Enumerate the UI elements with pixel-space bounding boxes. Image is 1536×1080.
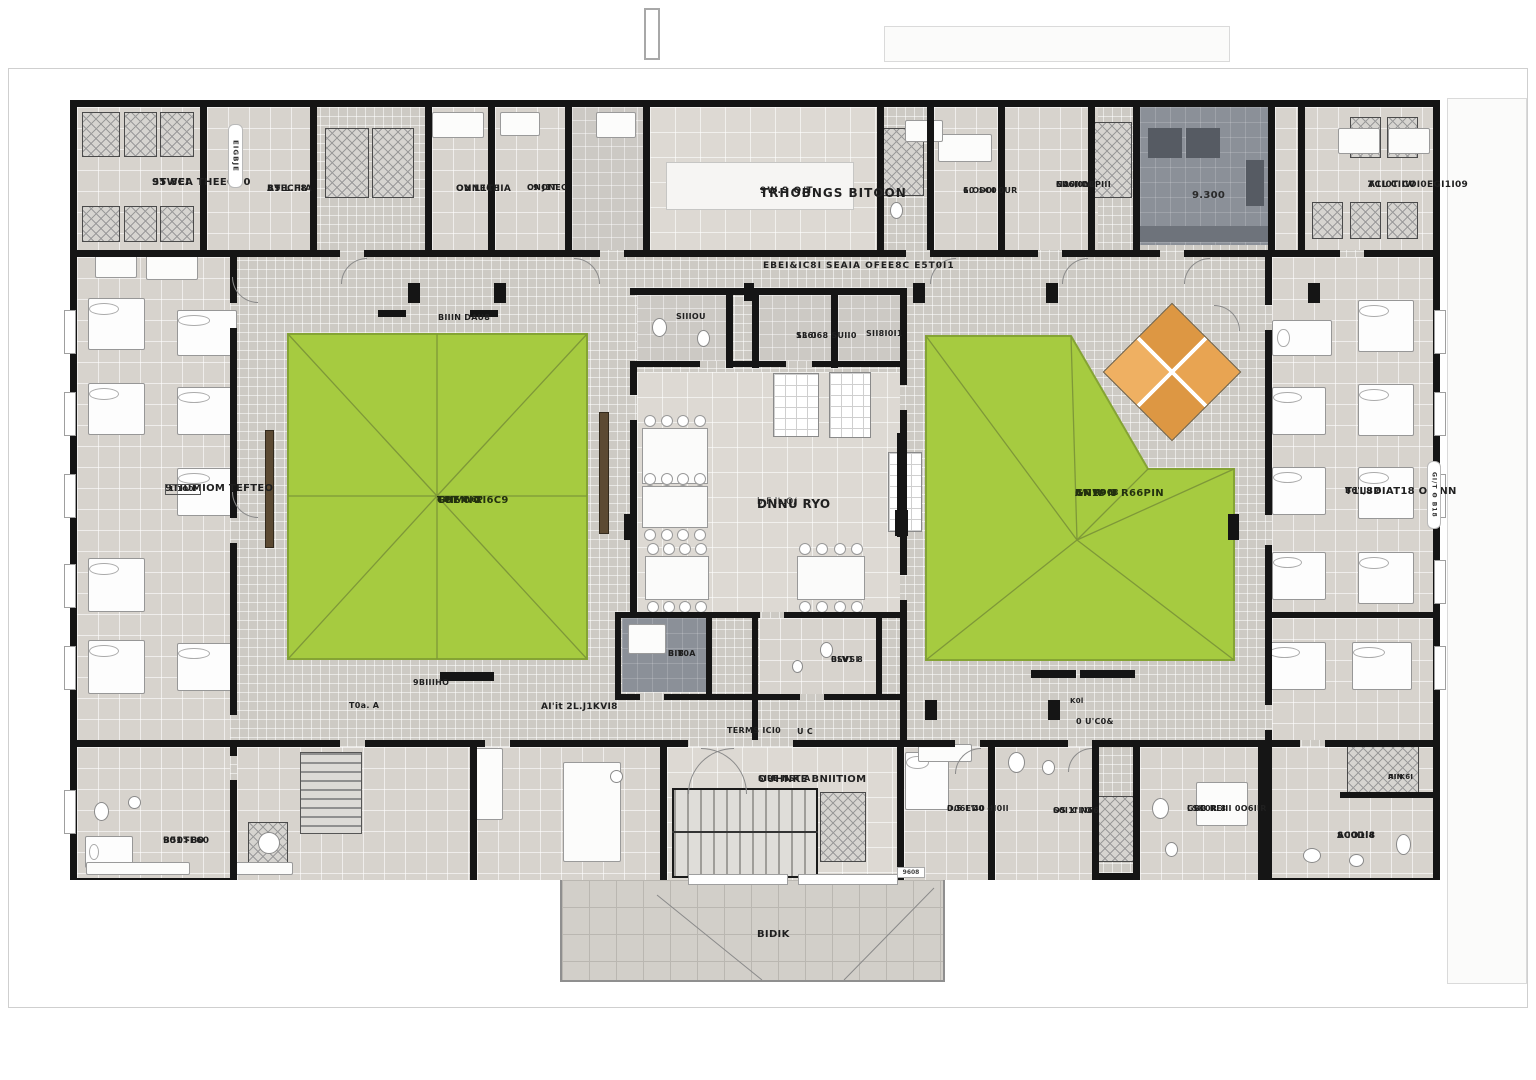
room-floor bbox=[838, 295, 900, 361]
chair bbox=[661, 529, 673, 541]
bed bbox=[1352, 642, 1412, 690]
pillow bbox=[178, 315, 210, 326]
bed bbox=[1272, 320, 1332, 356]
wall bbox=[230, 740, 340, 747]
chair bbox=[644, 415, 656, 427]
bed bbox=[177, 643, 237, 691]
bath-fixture bbox=[1349, 854, 1364, 867]
deck-lines bbox=[562, 880, 947, 984]
wall bbox=[895, 510, 908, 536]
wall bbox=[925, 700, 937, 720]
wall bbox=[624, 250, 906, 257]
wall bbox=[615, 612, 760, 618]
wall bbox=[706, 612, 712, 700]
wall bbox=[930, 250, 1038, 257]
wall bbox=[1265, 545, 1272, 705]
furniture bbox=[1388, 128, 1430, 154]
chair bbox=[694, 473, 706, 485]
wall bbox=[230, 543, 237, 715]
furniture bbox=[1338, 128, 1380, 154]
pillow bbox=[1359, 305, 1389, 317]
pillow bbox=[89, 388, 119, 400]
counter bbox=[1148, 128, 1182, 158]
bench bbox=[1228, 514, 1239, 540]
sauna-benches bbox=[300, 752, 362, 834]
bed bbox=[1272, 552, 1326, 600]
pillow bbox=[1277, 329, 1290, 348]
wall bbox=[365, 740, 485, 747]
window bbox=[64, 646, 76, 690]
wall bbox=[900, 600, 907, 740]
chair bbox=[679, 543, 691, 555]
counter bbox=[1140, 226, 1268, 242]
counter bbox=[1186, 128, 1220, 158]
chair bbox=[695, 543, 707, 555]
note-side-right: GI/T Θ B18 bbox=[1427, 461, 1441, 529]
furniture bbox=[500, 112, 540, 136]
window bbox=[64, 790, 76, 834]
wall bbox=[615, 612, 621, 700]
shaft bbox=[372, 128, 414, 198]
room-floor bbox=[637, 295, 726, 361]
chair bbox=[834, 543, 846, 555]
wall bbox=[1184, 250, 1340, 257]
bed bbox=[1272, 467, 1326, 515]
pillow bbox=[1359, 389, 1389, 401]
wall bbox=[630, 361, 700, 367]
furniture bbox=[938, 134, 992, 162]
wall bbox=[1062, 250, 1160, 257]
wall bbox=[70, 250, 340, 257]
dining-table bbox=[642, 486, 708, 528]
window bbox=[1434, 646, 1446, 690]
bath-fixture bbox=[128, 796, 141, 809]
chair bbox=[851, 543, 863, 555]
furniture bbox=[905, 120, 943, 142]
window bbox=[688, 874, 788, 885]
wall bbox=[1308, 283, 1320, 303]
wall bbox=[470, 740, 477, 880]
chair bbox=[644, 529, 656, 541]
wall bbox=[565, 107, 572, 250]
wall bbox=[310, 107, 317, 250]
bench bbox=[1031, 670, 1076, 678]
wall bbox=[630, 288, 907, 295]
floor-plan-canvas: STWEA THEEOI 095 8CI EIGBJE BTECIIIAA9 L… bbox=[0, 0, 1536, 1080]
wall bbox=[624, 514, 637, 540]
dining-table bbox=[645, 556, 709, 600]
window bbox=[64, 310, 76, 354]
wall bbox=[913, 283, 925, 303]
dining-table bbox=[797, 556, 865, 600]
shaft bbox=[1096, 796, 1134, 862]
shaft bbox=[124, 206, 157, 242]
wall bbox=[998, 107, 1005, 250]
bath-fixture bbox=[1303, 848, 1321, 863]
wall bbox=[927, 107, 934, 250]
pillow bbox=[178, 392, 210, 403]
pillow bbox=[1269, 647, 1300, 658]
pillow bbox=[1273, 472, 1302, 483]
furniture bbox=[235, 862, 293, 875]
wall bbox=[230, 780, 237, 880]
shaft bbox=[160, 112, 194, 157]
bath-fixture bbox=[94, 802, 109, 821]
window bbox=[1434, 310, 1446, 354]
bed bbox=[88, 383, 145, 435]
wall bbox=[1265, 612, 1440, 618]
pillow bbox=[178, 648, 210, 659]
bed bbox=[177, 310, 237, 356]
bed bbox=[1358, 300, 1414, 352]
pillow bbox=[89, 645, 119, 657]
counter bbox=[1246, 160, 1264, 206]
bed bbox=[177, 387, 237, 435]
wall bbox=[364, 250, 600, 257]
chair bbox=[647, 543, 659, 555]
wood-bench bbox=[599, 412, 609, 534]
deck bbox=[560, 878, 945, 982]
pillow bbox=[1273, 392, 1302, 403]
furniture bbox=[473, 748, 503, 820]
wall bbox=[1268, 107, 1275, 250]
window-seat bbox=[829, 372, 871, 438]
window bbox=[798, 874, 898, 885]
bed bbox=[88, 558, 145, 612]
wall bbox=[876, 612, 882, 700]
shaft bbox=[124, 112, 157, 157]
wall bbox=[77, 740, 230, 747]
chair bbox=[661, 473, 673, 485]
furniture bbox=[596, 112, 636, 138]
wall bbox=[1325, 740, 1440, 747]
shaft bbox=[1312, 202, 1343, 239]
pillow bbox=[1353, 647, 1385, 658]
shaft bbox=[1387, 202, 1418, 239]
bath-fixture bbox=[1152, 798, 1169, 819]
wall bbox=[1265, 257, 1272, 305]
pillow bbox=[89, 303, 119, 315]
window-seat bbox=[773, 373, 819, 437]
bath-fixture bbox=[610, 770, 623, 783]
bed bbox=[1268, 642, 1326, 690]
wall bbox=[1364, 250, 1440, 257]
window bbox=[64, 564, 76, 608]
bath-fixture bbox=[1396, 834, 1411, 855]
wall bbox=[726, 288, 733, 368]
bath-fixture bbox=[1008, 752, 1025, 773]
wall bbox=[494, 283, 506, 303]
wall bbox=[488, 107, 495, 250]
wall bbox=[1048, 700, 1060, 720]
wall bbox=[630, 365, 637, 395]
wall bbox=[1265, 330, 1272, 515]
chair bbox=[799, 543, 811, 555]
wall bbox=[1133, 107, 1140, 250]
room-floor bbox=[934, 107, 1098, 250]
window bbox=[1434, 392, 1446, 436]
chair bbox=[694, 529, 706, 541]
bed bbox=[88, 640, 145, 694]
bench bbox=[1080, 670, 1135, 678]
stair-rail bbox=[672, 831, 818, 833]
wall bbox=[1133, 747, 1140, 880]
wall bbox=[824, 694, 907, 700]
chair bbox=[694, 415, 706, 427]
chair bbox=[661, 415, 673, 427]
wall bbox=[980, 740, 1068, 747]
shaft bbox=[1350, 202, 1381, 239]
shaft bbox=[325, 128, 369, 198]
wall bbox=[1298, 107, 1305, 250]
wall bbox=[831, 288, 838, 368]
deck-tag: 9608 bbox=[897, 867, 925, 878]
bed bbox=[1272, 387, 1326, 435]
wall bbox=[643, 107, 650, 250]
wall bbox=[744, 283, 754, 301]
side-terrace-outline bbox=[1447, 98, 1527, 984]
window bbox=[1434, 560, 1446, 604]
bath-fixture bbox=[792, 660, 803, 673]
chair bbox=[644, 473, 656, 485]
wall bbox=[425, 107, 432, 250]
wall bbox=[812, 361, 907, 367]
wall bbox=[877, 107, 884, 250]
wall bbox=[900, 410, 907, 575]
bath-fixture bbox=[697, 330, 710, 347]
shaft bbox=[82, 206, 120, 242]
pillow bbox=[1273, 557, 1302, 568]
bed bbox=[88, 298, 145, 350]
wall bbox=[615, 694, 640, 700]
chair bbox=[663, 543, 675, 555]
furniture bbox=[432, 112, 484, 138]
pillow bbox=[89, 844, 99, 861]
pillow bbox=[89, 563, 119, 575]
wall bbox=[793, 740, 955, 747]
room-floor bbox=[759, 295, 831, 361]
shaft bbox=[82, 112, 120, 157]
chimney-outline bbox=[644, 8, 660, 60]
wall bbox=[1046, 283, 1058, 303]
pillow bbox=[1359, 557, 1389, 569]
window bbox=[64, 474, 76, 518]
wall bbox=[784, 612, 907, 618]
bed bbox=[1358, 384, 1414, 436]
wall bbox=[660, 740, 667, 880]
furniture bbox=[86, 862, 190, 875]
wall bbox=[1340, 792, 1440, 798]
upper-balcony-outline bbox=[884, 26, 1230, 62]
wall bbox=[1088, 107, 1095, 250]
furniture bbox=[628, 624, 666, 654]
wall bbox=[408, 283, 420, 303]
shaft bbox=[160, 206, 194, 242]
bath-fixture bbox=[258, 832, 280, 854]
bath-fixture bbox=[1165, 842, 1178, 857]
staircase bbox=[672, 788, 818, 878]
bath-fixture bbox=[890, 202, 903, 219]
wall bbox=[664, 694, 800, 700]
wall bbox=[752, 612, 758, 740]
bed bbox=[1358, 552, 1414, 604]
wall bbox=[1092, 740, 1300, 747]
pillow bbox=[1359, 472, 1389, 484]
wall bbox=[726, 361, 786, 367]
shaft bbox=[1347, 744, 1419, 794]
shaft bbox=[820, 792, 866, 862]
bath-fixture bbox=[1042, 760, 1055, 775]
bench bbox=[378, 310, 406, 317]
note-eigbje: EIGBJE bbox=[228, 124, 243, 188]
wall bbox=[897, 747, 904, 880]
bath-fixture bbox=[652, 318, 667, 337]
window bbox=[64, 392, 76, 436]
